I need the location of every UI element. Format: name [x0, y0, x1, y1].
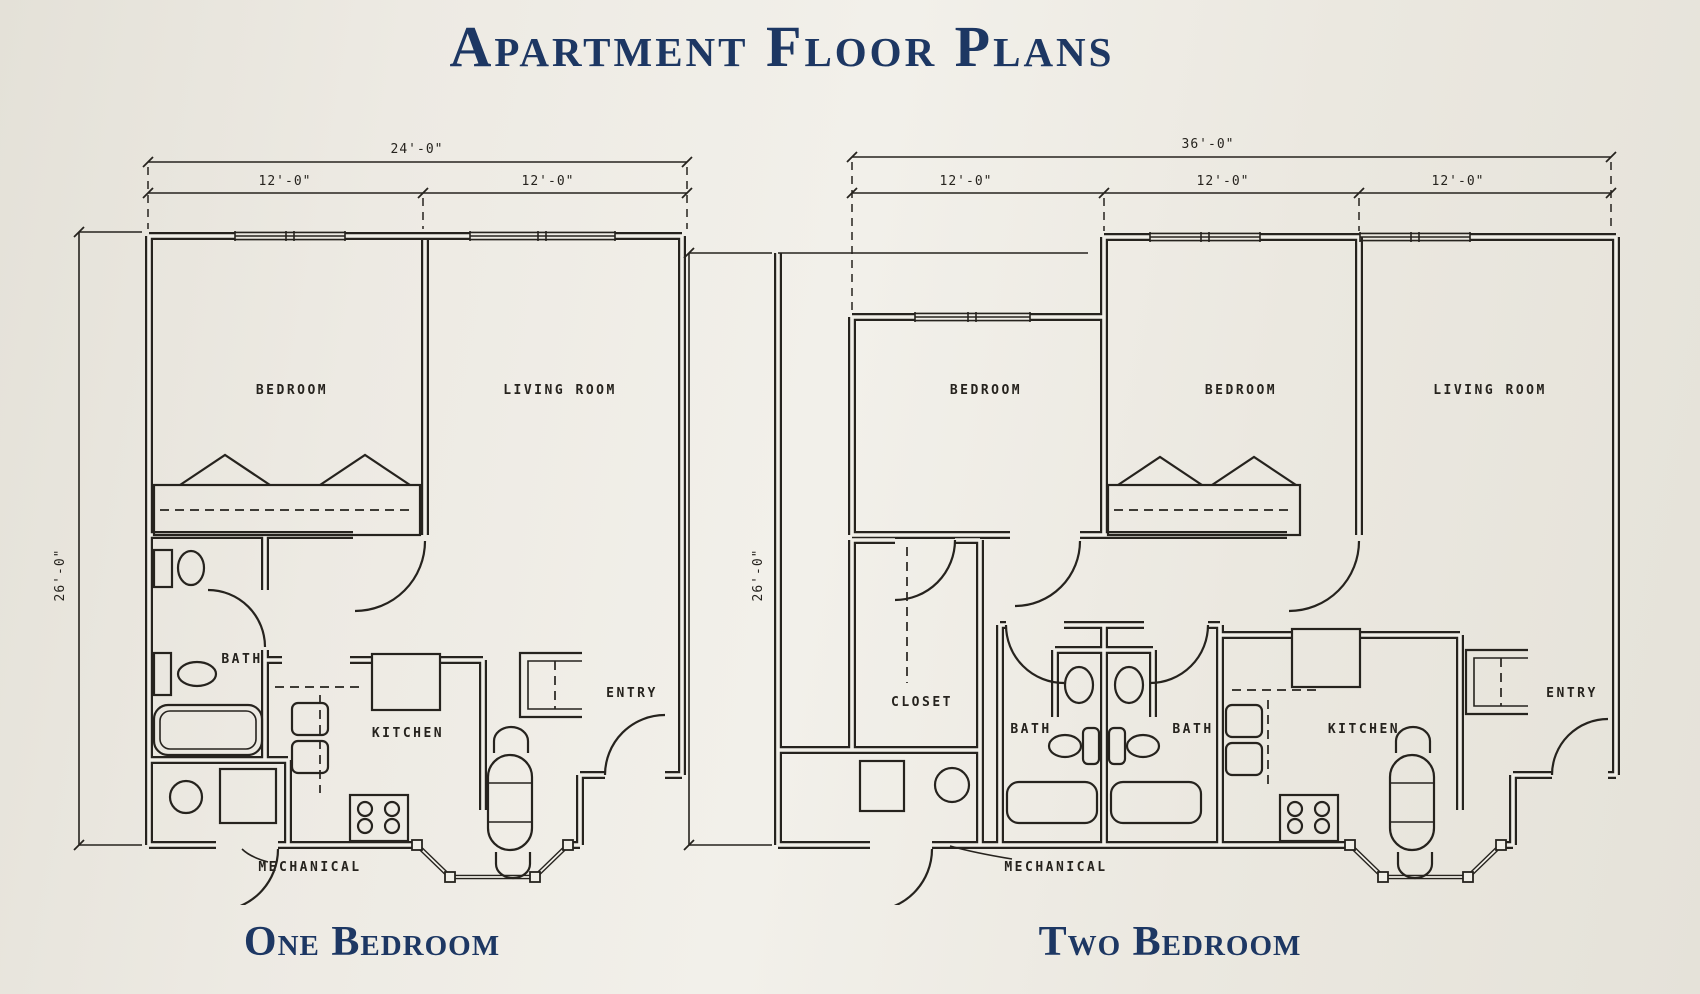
room-label-bedroom-1: BEDROOM [950, 383, 1022, 398]
room-label-bath: BATH [221, 652, 262, 667]
toilet-icon [178, 551, 204, 585]
floor-plan-two-bedroom: 36'-0" 12'-0" 12'-0" 12'-0" 26'-0" [660, 105, 1660, 905]
bathtub-icon [1111, 782, 1201, 823]
dimension-lines-two-bedroom: 36'-0" 12'-0" 12'-0" 12'-0" 26'-0" [684, 137, 1616, 850]
dining-table-icon [1390, 755, 1434, 850]
entry-door-arc [605, 715, 665, 775]
mechanical-door-arc [216, 849, 278, 905]
toilet-icon [1065, 667, 1093, 703]
bedroom1-window [915, 312, 1030, 322]
dim-overall-width: 24'-0" [391, 142, 444, 157]
caption-one-bedroom: One Bedroom [162, 918, 582, 966]
sink-icon [1127, 735, 1159, 757]
appliance-icon [1226, 743, 1262, 775]
furnace-icon [860, 761, 904, 811]
dim-height: 26'-0" [53, 549, 68, 602]
room-label-kitchen: KITCHEN [1328, 722, 1400, 737]
windows-two-bedroom [915, 232, 1470, 322]
bay-joint [563, 840, 573, 850]
water-heater-icon [170, 781, 202, 813]
dim-segment-3: 12'-0" [1432, 174, 1485, 189]
bifold-door-icon [320, 455, 410, 485]
room-label-entry: ENTRY [1546, 686, 1598, 701]
bay-joint [1345, 840, 1355, 850]
floor-plan-one-bedroom: 24'-0" 12'-0" 12'-0" 26'-0" [20, 105, 700, 905]
room-label-bath-1: BATH [1010, 722, 1051, 737]
sink-icon [1049, 735, 1081, 757]
bay-joint [445, 872, 455, 882]
sink-counter [1083, 728, 1099, 764]
bay-joint [412, 840, 422, 850]
bay-joint [1496, 840, 1506, 850]
room-label-bath-2: BATH [1172, 722, 1213, 737]
dim-segment-2: 12'-0" [522, 174, 575, 189]
room-label-closet: CLOSET [891, 695, 953, 710]
walls-one-bedroom [149, 236, 682, 882]
bathtub-icon [1007, 782, 1097, 823]
stove-icon [350, 795, 408, 841]
chair-icon [1398, 852, 1432, 878]
entry-closet [1466, 650, 1528, 714]
bathtub-inner [160, 711, 256, 749]
bay-joint [1378, 872, 1388, 882]
dim-segment-2: 12'-0" [1197, 174, 1250, 189]
bifold-door-icon [1118, 457, 1202, 485]
sink-icon [178, 662, 216, 686]
room-label-mechanical: MECHANICAL [1004, 860, 1107, 875]
living-room-door-arc [1289, 541, 1359, 611]
bedroom1-door-arc [1015, 541, 1080, 606]
bifold-door-icon [180, 455, 270, 485]
bathtub-icon [154, 705, 262, 755]
closet-door-arc [895, 540, 955, 600]
living-room-window [1360, 232, 1470, 242]
room-label-entry: ENTRY [606, 686, 658, 701]
appliance-icon [1226, 705, 1262, 737]
room-label-bedroom: BEDROOM [256, 383, 328, 398]
appliance-icon [292, 741, 328, 773]
page-title: Apartment Floor Plans [0, 8, 1564, 86]
chair-icon [494, 727, 528, 753]
dining-table-icon [488, 755, 532, 850]
bay-joint [530, 872, 540, 882]
bath2-door-arc [1150, 625, 1208, 683]
chair-icon [496, 852, 530, 878]
kitchen-island [372, 654, 440, 710]
bath-door-arc [208, 590, 265, 647]
sink-counter [154, 653, 171, 695]
fixtures-one-bedroom [154, 455, 665, 905]
bifold-door-icon [1212, 457, 1296, 485]
dim-segment-1: 12'-0" [940, 174, 993, 189]
dim-overall-width: 36'-0" [1182, 137, 1235, 152]
entry-door-arc [1552, 719, 1608, 775]
bedroom-door-arc [355, 541, 425, 611]
sink-counter [1109, 728, 1125, 764]
entry-closet [520, 653, 582, 717]
room-label-kitchen: KITCHEN [372, 726, 444, 741]
water-heater-icon [935, 768, 969, 802]
room-label-mechanical: MECHANICAL [258, 860, 361, 875]
bay-joint [1463, 872, 1473, 882]
toilet-tank-icon [154, 550, 172, 587]
caption-two-bedroom: Two Bedroom [960, 918, 1380, 966]
toilet-icon [1115, 667, 1143, 703]
mechanical-door-arc [870, 849, 932, 905]
room-label-living-room: LIVING ROOM [1433, 383, 1547, 398]
dim-segment-1: 12'-0" [259, 174, 312, 189]
appliance-icon [292, 703, 328, 735]
furnace-icon [220, 769, 276, 823]
chair-icon [1396, 727, 1430, 753]
room-label-bedroom-2: BEDROOM [1205, 383, 1277, 398]
bedroom2-window [1150, 232, 1260, 242]
room-label-living-room: LIVING ROOM [503, 383, 617, 398]
bedroom-window [235, 231, 345, 241]
fixtures-two-bedroom [860, 457, 1608, 905]
kitchen-island [1292, 629, 1360, 687]
dim-height: 26'-0" [751, 549, 766, 602]
stove-icon [1280, 795, 1338, 841]
page: Apartment Floor Plans 24'-0" 12'-0" 12'-… [0, 0, 1700, 994]
living-room-window [470, 231, 615, 241]
